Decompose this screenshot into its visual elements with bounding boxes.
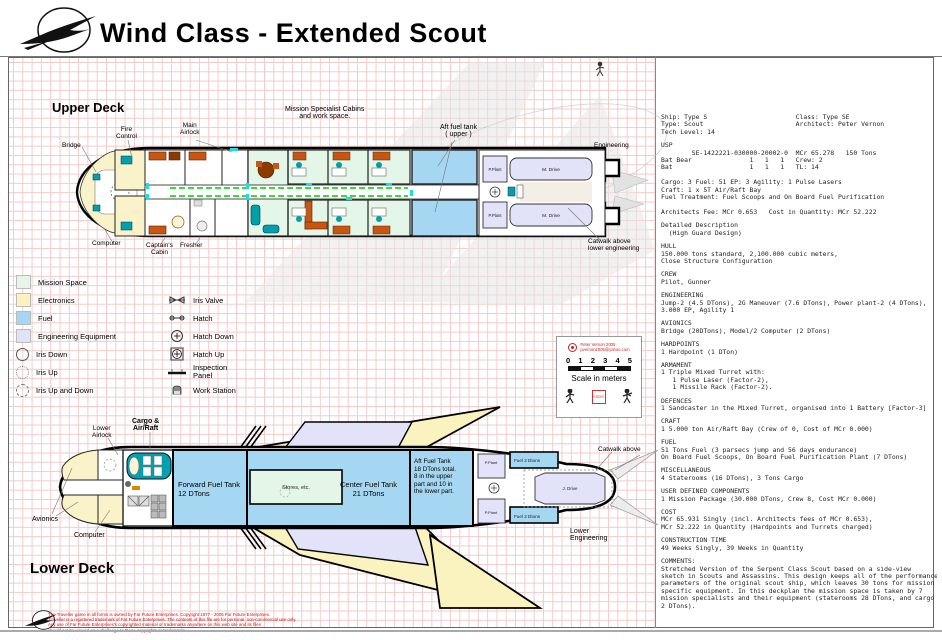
stats-detailed-heading: Detailed Description (High Guard Design) bbox=[661, 222, 937, 237]
central-corridor bbox=[145, 185, 480, 199]
lower-deck-plan: P.Plant P.Plant Fuel 2 Dtons Fuel 2 Dton… bbox=[52, 407, 658, 608]
legend-label: Hatch bbox=[193, 314, 213, 323]
stats-avionics: AVIONICS Bridge (20DTons), Model/2 Compu… bbox=[661, 320, 937, 335]
avionics-room bbox=[62, 495, 98, 524]
label-lower-airlock: Lower Airlock bbox=[92, 425, 112, 439]
svg-text:Fuel 2 Dtons: Fuel 2 Dtons bbox=[514, 458, 541, 463]
legend-label: Iris Up bbox=[36, 368, 58, 377]
svg-text:Stores, etc.: Stores, etc. bbox=[282, 485, 310, 491]
legend-label: Iris Valve bbox=[193, 296, 223, 305]
fuel-swatch bbox=[16, 311, 31, 325]
stats-engineering: ENGINEERING Jump-2 (4.5 DTons), 2G Maneu… bbox=[661, 292, 937, 314]
legend-label: Work Station bbox=[193, 386, 236, 395]
svg-text:P.Plant: P.Plant bbox=[489, 167, 503, 172]
scale-box: Peter Vernon 2005pvernon2005@yahoo.com 0… bbox=[556, 336, 642, 418]
aft-fuel-upper-top bbox=[412, 150, 477, 184]
scale-ticks: 012345 bbox=[566, 356, 632, 365]
hatch-up-icon bbox=[168, 347, 186, 361]
work-station-icon bbox=[168, 385, 186, 396]
legend-label: Inspection Panel bbox=[193, 364, 227, 380]
stats-cost: COST MCr 65.931 Singly (incl. Architects… bbox=[661, 509, 937, 531]
label-captains-cabin: Captain's Cabin bbox=[146, 242, 173, 256]
stats-craft: CRAFT 1 5.000 ton Air/Raft Bay (Crew of … bbox=[661, 418, 937, 433]
main-airlock-room bbox=[222, 150, 248, 190]
scale-caption: Scale in meters bbox=[571, 374, 626, 383]
label-fire-control: Fire Control bbox=[116, 126, 137, 140]
wing-bottom-2 bbox=[430, 535, 540, 608]
label-upper-computer: Computer bbox=[92, 240, 121, 247]
label-mission-space: Mission Specialist Cabins and work space… bbox=[285, 106, 364, 120]
stats-crew: CREW Pilot, Gunner bbox=[661, 271, 937, 286]
legend-label: Iris Up and Down bbox=[36, 386, 94, 395]
label-lower-engineering: Lower Engineering bbox=[570, 528, 607, 542]
stats-construction-time: CONSTRUCTION TIME 49 Weeks Singly, 39 We… bbox=[661, 537, 937, 552]
mission-space-swatch bbox=[16, 275, 31, 289]
svg-text:P.Plant: P.Plant bbox=[485, 460, 498, 465]
label-upper-catwalk: Catwalk above lower engineering bbox=[588, 238, 639, 252]
legend: Mission Space Electronics Fuel Engineeri… bbox=[16, 272, 266, 398]
upper-deck-heading: Upper Deck bbox=[52, 100, 124, 115]
label-upper-engineering: Engineering bbox=[594, 142, 629, 149]
credit-heart-icon bbox=[568, 343, 577, 352]
legend-label: Fuel bbox=[38, 314, 53, 323]
legend-label: Hatch Down bbox=[193, 332, 234, 341]
label-lower-catwalk: Catwalk above bbox=[598, 446, 641, 453]
stats-miscellaneous: MISCELLANEOUS 4 Staterooms (16 DTons), 3… bbox=[661, 467, 937, 482]
label-center-fuel: Center Fuel Tank 21 DTons bbox=[340, 480, 397, 498]
stats-comments: COMMENTS: Stretched Version of the Serpe… bbox=[661, 558, 937, 610]
ship-stats-panel: Ship: Type S Class: Type SE Type: Scout … bbox=[661, 114, 937, 624]
p-plant-room bbox=[478, 454, 505, 478]
label-aft-fuel-upper: Aft fuel tank ( upper ) bbox=[440, 124, 477, 138]
label-bridge: Bridge bbox=[62, 142, 81, 149]
svg-text:J. Drive: J. Drive bbox=[563, 486, 578, 491]
lower-computer-room bbox=[98, 495, 123, 524]
bottom-rule bbox=[0, 630, 942, 632]
stats-hardpoints: HARDPOINTS 1 Hardpoint (1 DTon) bbox=[661, 341, 937, 356]
engineering-equipment-swatch bbox=[16, 329, 31, 343]
iris-down-icon bbox=[16, 348, 29, 361]
stats-id-block: Ship: Type S Class: Type SE Type: Scout … bbox=[661, 114, 937, 136]
lower-deck-heading: Lower Deck bbox=[30, 560, 114, 577]
hatch-down-icon bbox=[168, 329, 186, 343]
svg-text:P.Plant: P.Plant bbox=[485, 510, 498, 515]
stats-usp-block: USP SE-1422221-030000-20002-0 MCr 65.278… bbox=[661, 142, 937, 216]
stats-user-defined: USER DEFINED COMPONENTS 1 Mission Packag… bbox=[661, 488, 937, 503]
inspection-panel-icon bbox=[168, 368, 186, 376]
ssds-stamp: SSDS bbox=[592, 390, 606, 404]
wing-box-top bbox=[285, 422, 412, 448]
armed-figure-icon bbox=[621, 389, 634, 404]
upper-deck-plan: P.Plant P.Plant M. Drive M. Drive bbox=[77, 62, 648, 245]
iris-valve-icon bbox=[168, 296, 186, 304]
svg-text:P.Plant: P.Plant bbox=[489, 213, 503, 218]
avionics-room bbox=[62, 450, 98, 480]
designer-credit: Peter Vernon 2005pvernon2005@yahoo.com bbox=[568, 342, 629, 352]
label-avionics: Avionics bbox=[32, 516, 58, 523]
electronics-swatch bbox=[16, 293, 31, 307]
label-cargo-airraft: Cargo & Air/Raft bbox=[132, 418, 159, 432]
aft-fuel-upper-bottom bbox=[412, 200, 477, 236]
legend-label: Electronics bbox=[38, 296, 75, 305]
walking-figure-icon bbox=[564, 389, 576, 404]
label-fresher: Fresher bbox=[180, 242, 202, 249]
svg-text:Fuel 2 Dtons: Fuel 2 Dtons bbox=[514, 514, 541, 519]
label-lower-computer: Computer bbox=[74, 532, 105, 539]
label-main-airlock: Main Airlock bbox=[180, 122, 200, 136]
label-forward-fuel: Forward Fuel Tank 12 DTons bbox=[178, 480, 240, 498]
iris-up-icon bbox=[16, 366, 29, 379]
crew-figure-icon bbox=[596, 62, 604, 76]
svg-text:M. Drive: M. Drive bbox=[542, 167, 560, 173]
lower-airlock-room bbox=[98, 450, 123, 480]
label-aft-fuel-lower: Aft Fuel Tank 18 DTons total. 8 in the u… bbox=[414, 458, 456, 496]
scale-bar bbox=[568, 366, 631, 371]
stats-armament: ARMAMENT 1 Triple Mixed Turret with: 1 P… bbox=[661, 362, 937, 392]
legend-label: Engineering Equipment bbox=[38, 332, 116, 341]
hatch-icon bbox=[168, 314, 186, 322]
legend-label: Hatch Up bbox=[193, 350, 224, 359]
iris-up-down-icon bbox=[16, 384, 29, 397]
stats-defences: DEFENCES 1 Sandcaster in the Mixed Turre… bbox=[661, 398, 937, 413]
legend-label: Iris Down bbox=[36, 350, 67, 359]
stats-hull: HULL 150.000 tons standard, 2,100.000 cu… bbox=[661, 243, 937, 265]
svg-text:M. Drive: M. Drive bbox=[542, 213, 560, 219]
stats-fuel: FUEL 51 Tons Fuel (3 parsecs jump and 56… bbox=[661, 439, 937, 461]
credit-email: pvernon2005@yahoo.com bbox=[580, 347, 629, 352]
legend-label: Mission Space bbox=[38, 278, 87, 287]
